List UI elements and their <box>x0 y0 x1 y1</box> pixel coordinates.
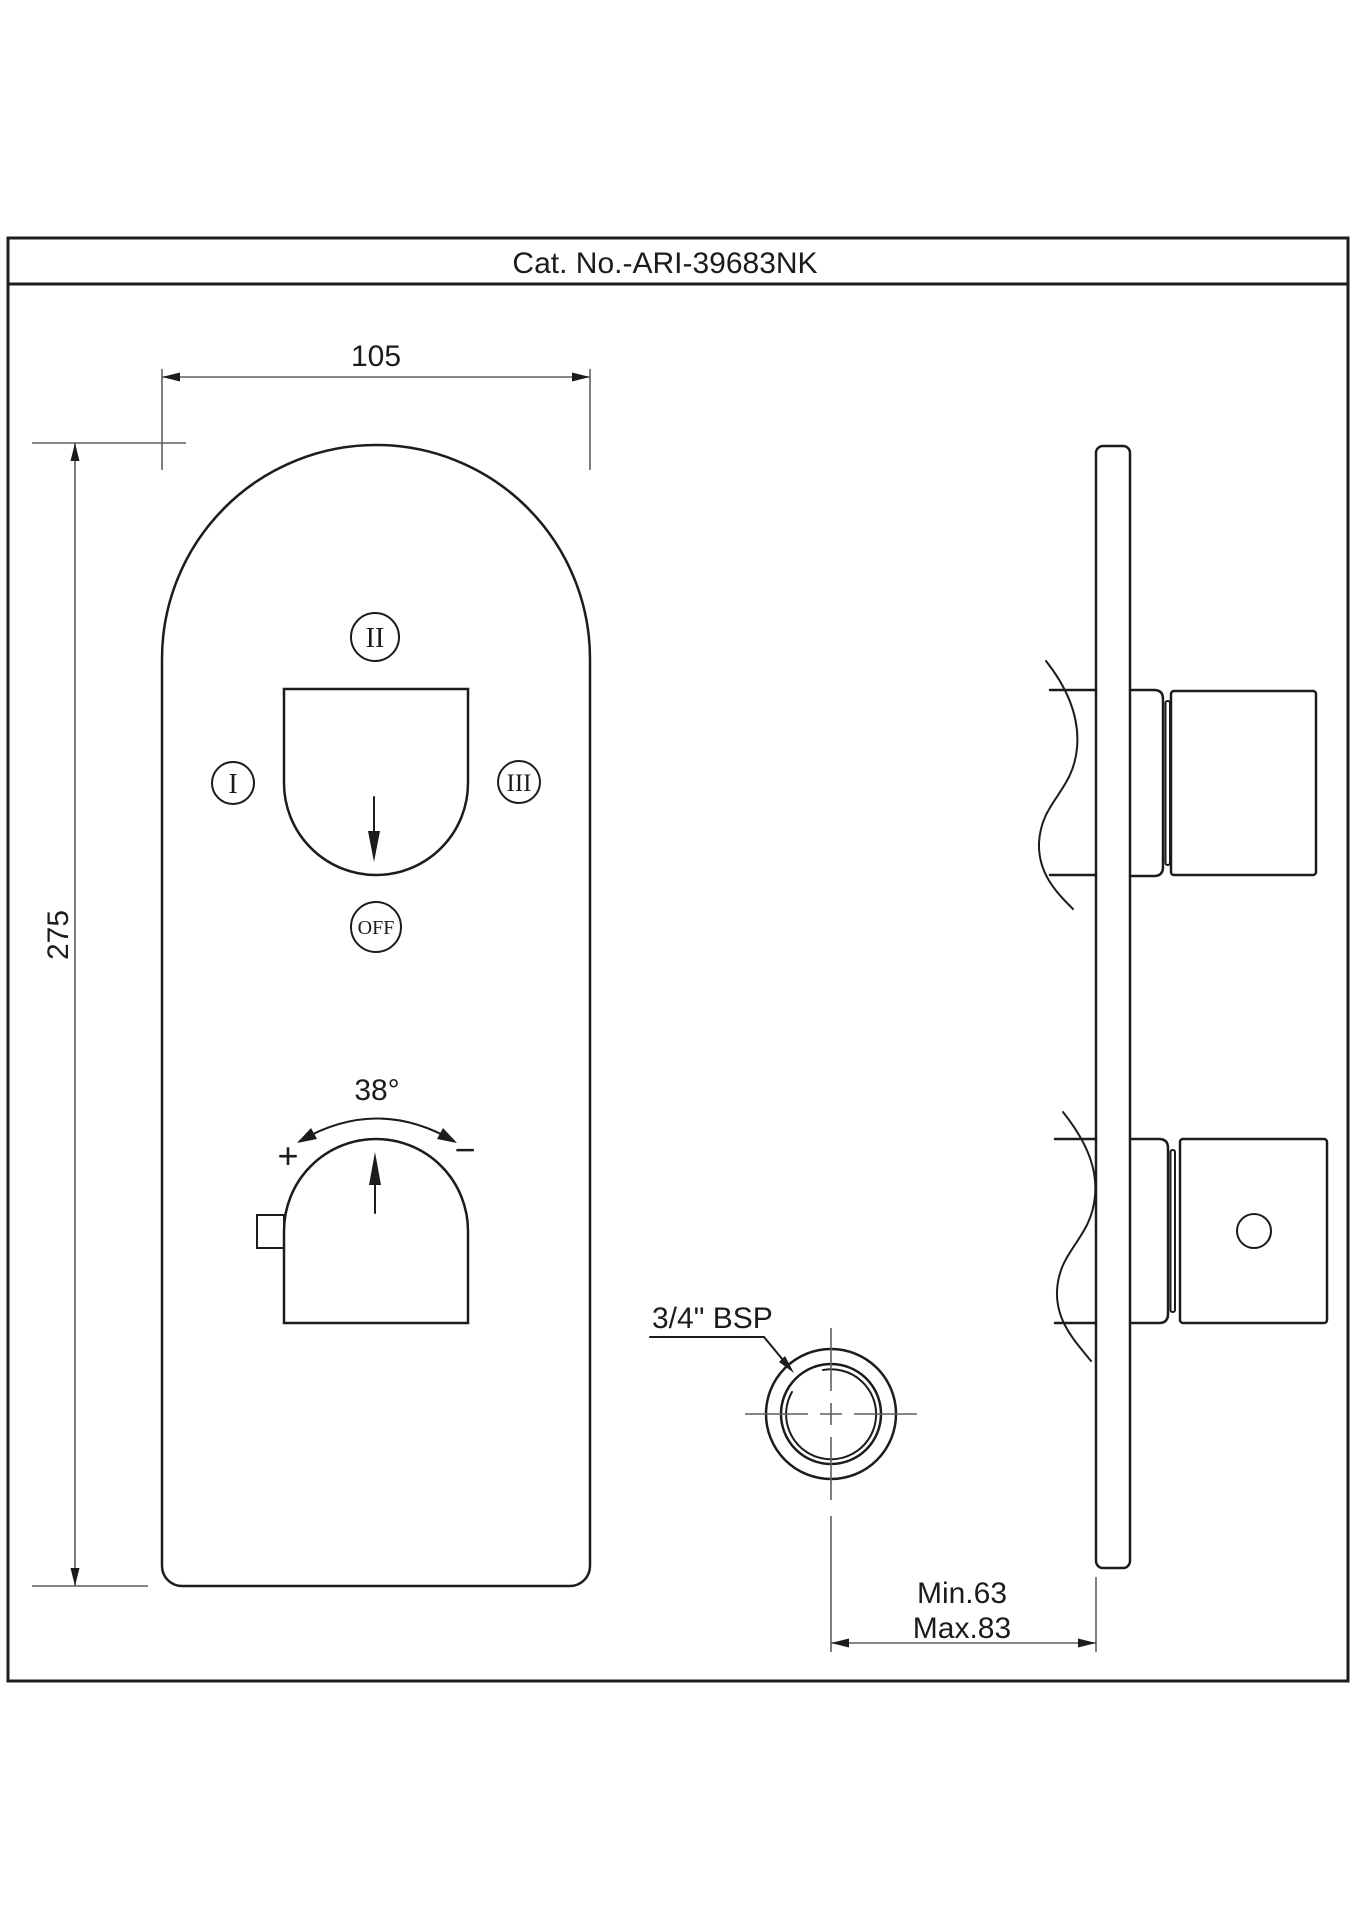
position-label-left: I <box>228 769 237 800</box>
cold-label: − <box>454 1129 475 1170</box>
dim-arrowhead-top <box>71 443 80 461</box>
lower-knob-block <box>1180 1139 1327 1323</box>
position-label-off: OFF <box>358 917 395 939</box>
technical-drawing: Cat. No.-ARI-39683NK II I III OFF 38° + … <box>0 0 1356 1920</box>
upper-break-line <box>1039 661 1077 909</box>
dim-arrowhead-right <box>1078 1639 1096 1648</box>
width-dim-text: 105 <box>351 340 401 373</box>
position-label-right: III <box>507 770 532 797</box>
upper-knob-block <box>1171 691 1316 875</box>
front-view: II I III OFF 38° + − <box>162 445 590 1586</box>
set-screw <box>1237 1214 1271 1248</box>
width-dimension: 105 <box>162 340 590 470</box>
thread-label: 3/4" BSP <box>652 1302 773 1335</box>
lower-knob-neck <box>1171 1150 1176 1312</box>
thread-detail: 3/4" BSP <box>650 1302 917 1500</box>
dim-arrowhead-left <box>162 373 180 382</box>
drawing-border <box>8 238 1348 1681</box>
swing-arrowhead-left <box>297 1128 317 1143</box>
lower-knob-collar <box>1130 1139 1168 1323</box>
side-view <box>1039 446 1327 1568</box>
upper-knob-collar <box>1130 690 1163 876</box>
depth-min-text: Min.63 <box>917 1577 1007 1610</box>
side-plate <box>1096 446 1130 1568</box>
dim-arrowhead-right <box>572 373 590 382</box>
depth-dimension: Min.63 Max.83 <box>831 1516 1096 1652</box>
position-label-top: II <box>366 623 385 654</box>
catalog-number: Cat. No.-ARI-39683NK <box>512 247 817 280</box>
height-dim-text: 275 <box>42 910 75 960</box>
hot-label: + <box>277 1135 298 1176</box>
trim-plate-outline <box>162 445 590 1586</box>
angle-label: 38° <box>354 1074 399 1107</box>
upper-knob-neck <box>1166 701 1171 865</box>
dim-arrowhead-left <box>831 1639 849 1648</box>
drawing-sheet: Cat. No.-ARI-39683NK II I III OFF 38° + … <box>0 0 1356 1920</box>
temperature-pointer-arrowhead <box>369 1152 381 1185</box>
depth-max-text: Max.83 <box>913 1612 1011 1645</box>
temperature-swing-arc <box>300 1119 454 1142</box>
diverter-pointer-arrowhead <box>368 831 380 862</box>
temperature-knob-tab <box>257 1215 284 1248</box>
dim-arrowhead-bottom <box>71 1568 80 1586</box>
